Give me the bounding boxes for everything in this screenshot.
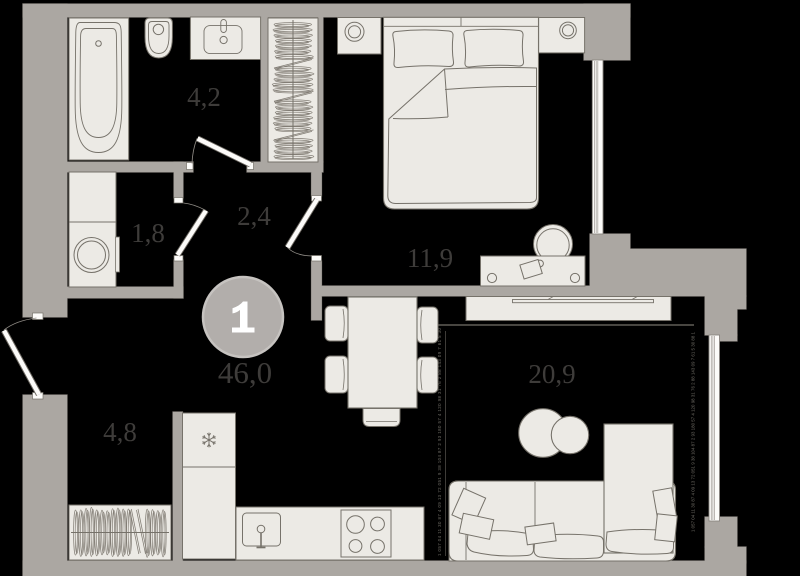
svg-text:4,8: 4,8 [103,417,137,447]
svg-text:11,9: 11,9 [407,243,453,273]
svg-text:2,4: 2,4 [237,201,271,231]
svg-text:46,0: 46,0 [218,355,272,390]
svg-text:4,2: 4,2 [187,82,221,112]
svg-text:1 057 04 11 30 87 4 09 13 72 0: 1 057 04 11 30 87 4 09 13 72 051 9 38 10… [691,331,696,532]
svg-text:20,9: 20,9 [528,359,575,389]
svg-text:1,8: 1,8 [131,218,165,248]
